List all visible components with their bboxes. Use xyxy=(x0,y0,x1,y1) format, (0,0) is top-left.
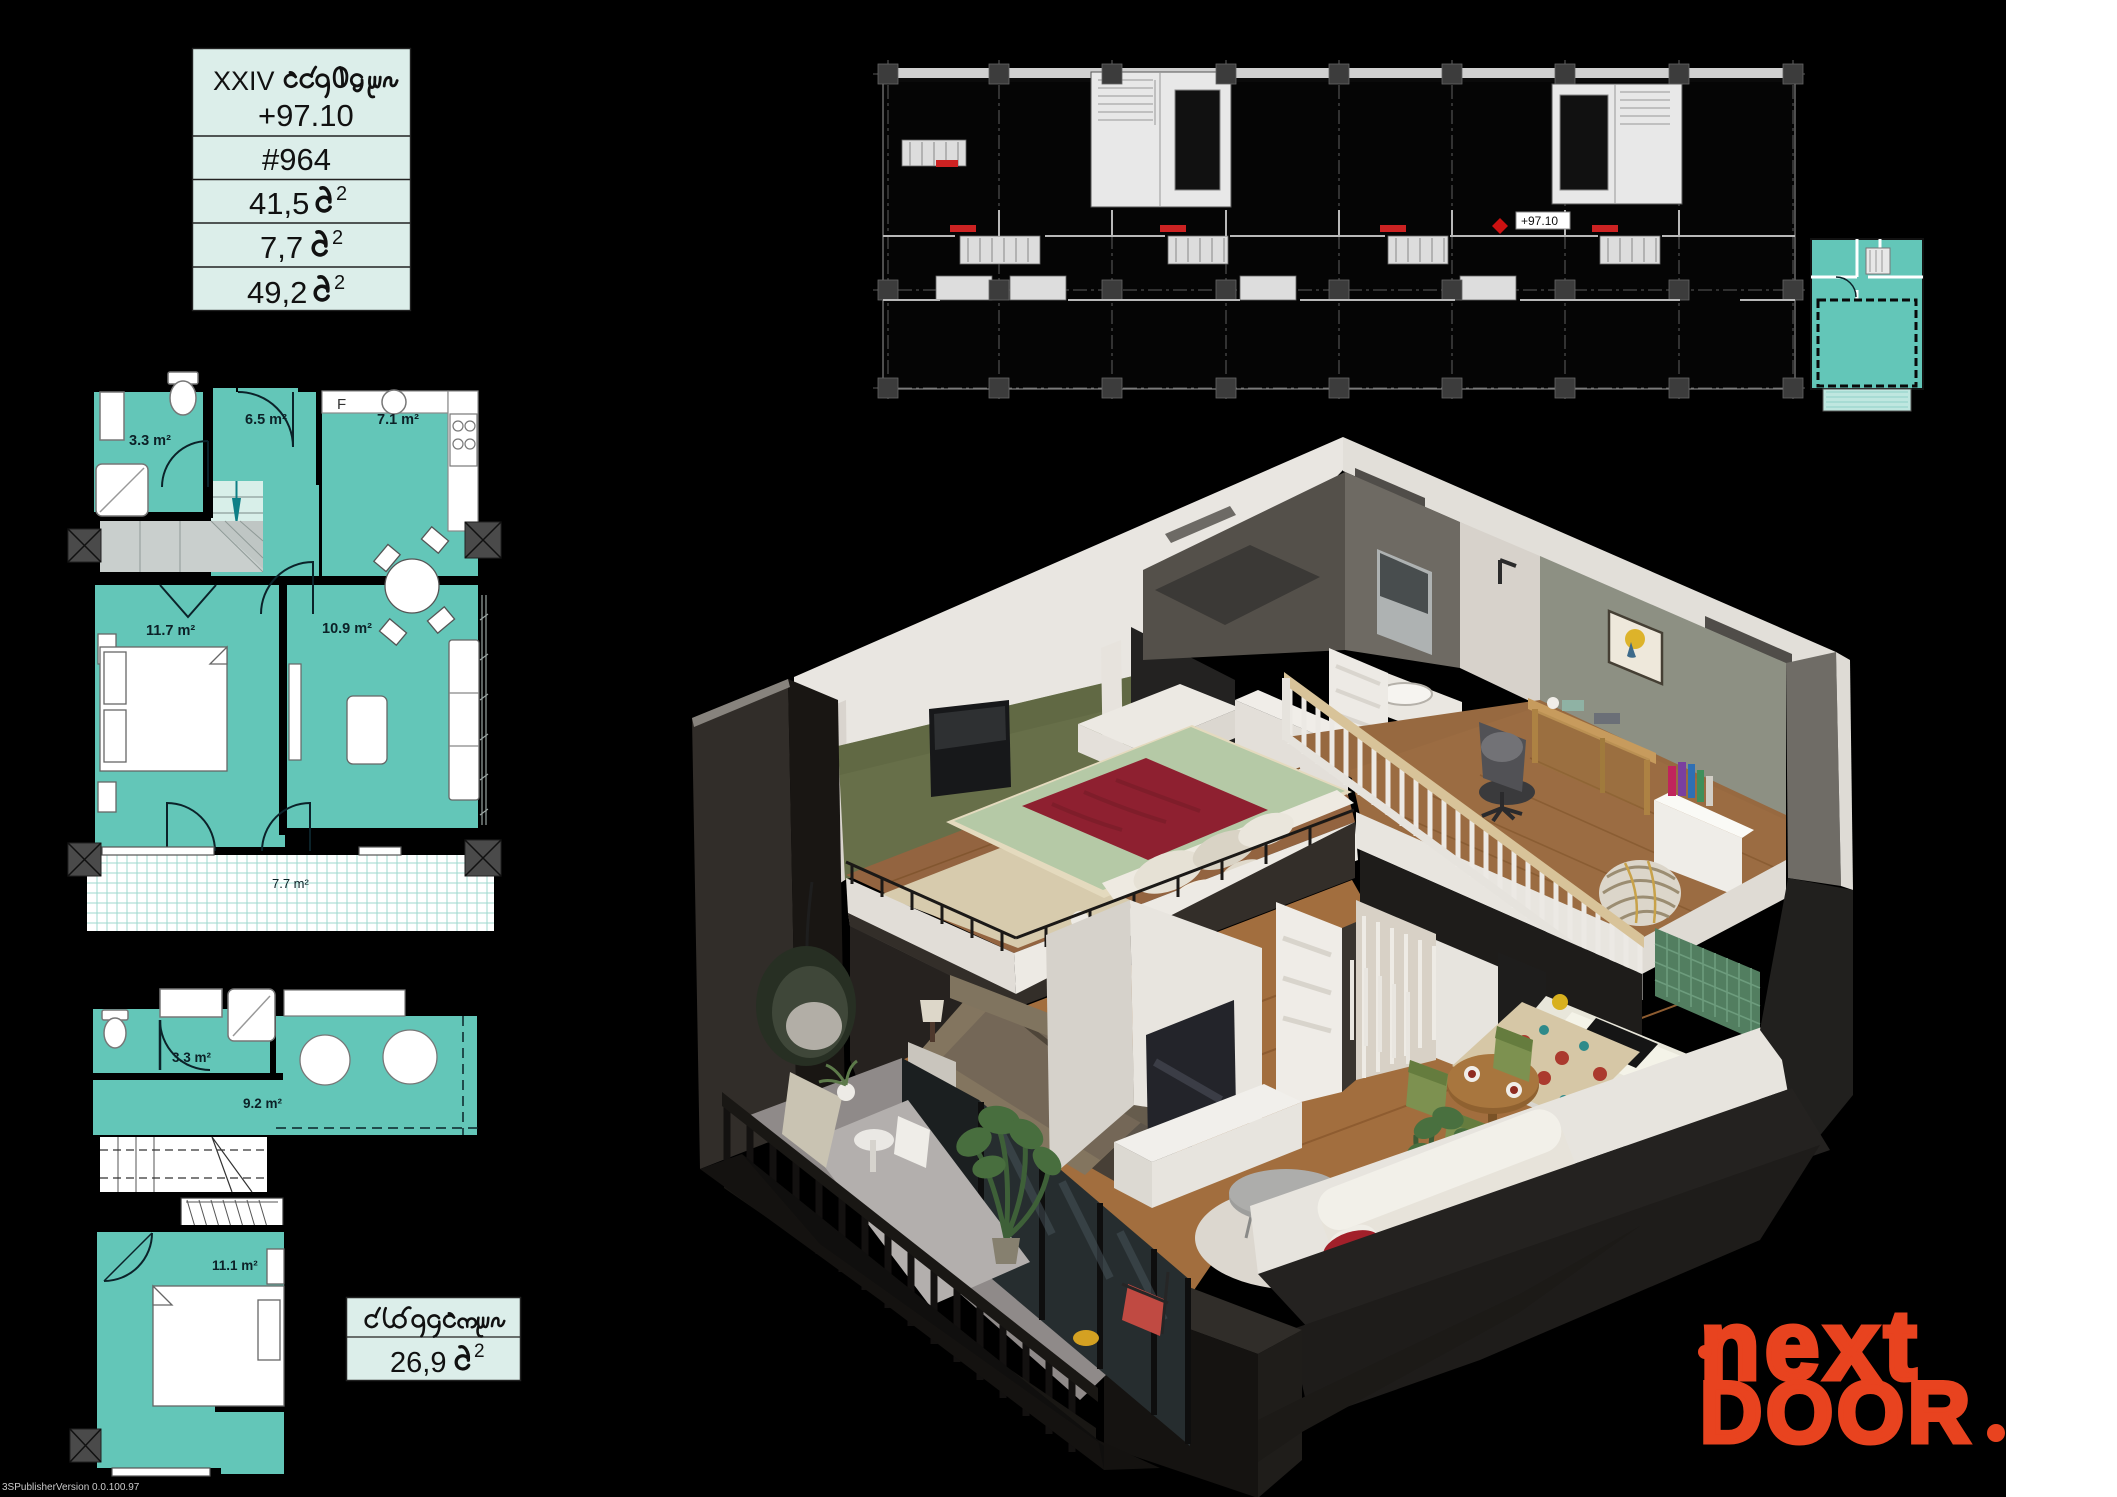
svg-text:7,7: 7,7 xyxy=(260,230,303,265)
svg-text:6.5 m²: 6.5 m² xyxy=(245,412,287,428)
svg-text:2: 2 xyxy=(334,272,345,294)
svg-text:7.1 m²: 7.1 m² xyxy=(377,412,419,428)
svg-text:+97.10: +97.10 xyxy=(258,98,354,133)
svg-text:41,5: 41,5 xyxy=(249,186,309,221)
svg-text:3.3 m²: 3.3 m² xyxy=(129,433,171,449)
svg-text:7.7 m²: 7.7 m² xyxy=(272,876,310,891)
svg-text:XXIV: XXIV xyxy=(213,66,275,96)
svg-text:2: 2 xyxy=(336,183,347,205)
svg-text:+97.10: +97.10 xyxy=(1521,214,1558,228)
svg-text:F: F xyxy=(337,396,346,413)
svg-text:26,9: 26,9 xyxy=(390,1347,446,1379)
svg-text:3.3 m²: 3.3 m² xyxy=(172,1050,212,1065)
svg-text:11.1 m²: 11.1 m² xyxy=(212,1258,258,1273)
svg-text:49,2: 49,2 xyxy=(247,275,307,310)
svg-text:3SPublisherVersion 0.0.100.97: 3SPublisherVersion 0.0.100.97 xyxy=(2,1482,140,1493)
svg-text:9.2 m²: 9.2 m² xyxy=(243,1096,283,1111)
svg-text:2: 2 xyxy=(332,227,343,249)
svg-text:#964: #964 xyxy=(262,142,331,177)
svg-text:2: 2 xyxy=(474,1341,485,1362)
svg-text:10.9 m²: 10.9 m² xyxy=(322,621,372,637)
svg-text:11.7 m²: 11.7 m² xyxy=(146,623,195,639)
svg-text:DOOR: DOOR xyxy=(1700,1365,1974,1461)
